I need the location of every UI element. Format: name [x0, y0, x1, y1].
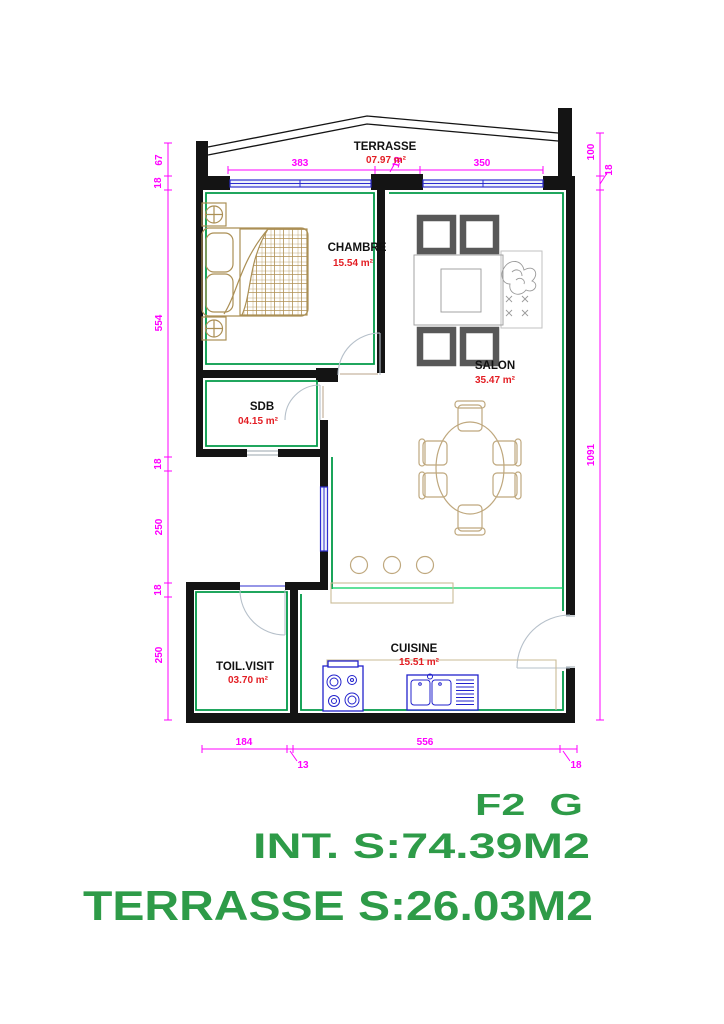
terrace-area-title: TERRASSE S:26.03M2: [83, 882, 593, 929]
sink: [407, 674, 478, 710]
dim-left-250b: 250: [154, 646, 165, 663]
room-label-salon: SALON: [475, 360, 515, 372]
lightwell-window: [321, 487, 328, 551]
room-area-chambre: 15.54 m²: [333, 258, 374, 269]
room-area-sdb: 04.15 m²: [238, 416, 279, 427]
side-rug: [501, 251, 542, 328]
armchair: [463, 330, 496, 363]
pillow: [206, 274, 233, 312]
bed: [202, 228, 308, 316]
dim-right-1091: 1091: [586, 443, 597, 466]
armchair: [420, 218, 453, 251]
room-label-sdb: SDB: [250, 401, 274, 413]
dim-left-554: 554: [154, 314, 165, 331]
dim-bottom-18: 18: [570, 760, 582, 771]
salon-seating: [414, 218, 542, 363]
toilet-door: [240, 590, 285, 635]
dim-left-18a: 18: [153, 177, 164, 189]
room-area-toilette: 03.70 m²: [228, 675, 269, 686]
armchair: [463, 218, 496, 251]
coffee-table: [414, 255, 503, 325]
title-block: F2 G INT. S:74.39M2 TERRASSE S:26.03M2: [83, 787, 593, 929]
room-area-salon: 35.47 m²: [475, 375, 516, 386]
room-label-terrasse: TERRASSE: [354, 141, 417, 153]
terrace-window-left: [230, 180, 371, 187]
unit-title: F2 G: [475, 787, 583, 822]
dining-set: [419, 401, 521, 535]
room-label-cuisine: CUISINE: [391, 643, 438, 655]
room-label-toilette: TOIL.VISIT: [216, 661, 274, 673]
dim-right-100: 100: [586, 143, 597, 160]
bar-stool: [417, 557, 434, 574]
terrace-window-right: [423, 180, 543, 187]
dim-top-383: 383: [292, 158, 309, 169]
sdb-lightwell-opening: [247, 451, 278, 455]
room-area-cuisine: 15.51 m²: [399, 657, 440, 668]
dim-left-250a: 250: [154, 518, 165, 535]
dim-left-18b: 18: [153, 458, 164, 470]
dim-bottom-556: 556: [417, 737, 434, 748]
floor-plan-drawing: 67 18 554 18 250 18 250 383 19 350 100 1…: [0, 0, 724, 1024]
armchair: [420, 330, 453, 363]
dim-left-18c: 18: [153, 584, 164, 596]
room-labels: TERRASSE 07.97 m² CHAMBRE 15.54 m² SALON…: [216, 141, 516, 686]
interior-area-title: INT. S:74.39M2: [253, 827, 590, 866]
dim-top-350: 350: [474, 158, 491, 169]
bar-stool: [384, 557, 401, 574]
dim-bottom-184: 184: [236, 737, 253, 748]
bar-stool: [351, 557, 368, 574]
dim-right-18: 18: [604, 164, 615, 176]
room-label-chambre: CHAMBRE: [328, 242, 387, 254]
room-area-terrasse: 07.97 m²: [366, 155, 407, 166]
dim-left-67: 67: [154, 154, 165, 166]
dim-bottom-13: 13: [297, 760, 309, 771]
floor-plan-canvas: 67 18 554 18 250 18 250 383 19 350 100 1…: [0, 0, 724, 1024]
bar-counter: [331, 557, 453, 604]
plant: [502, 261, 536, 316]
stove: [323, 661, 363, 711]
pillow: [206, 233, 233, 272]
